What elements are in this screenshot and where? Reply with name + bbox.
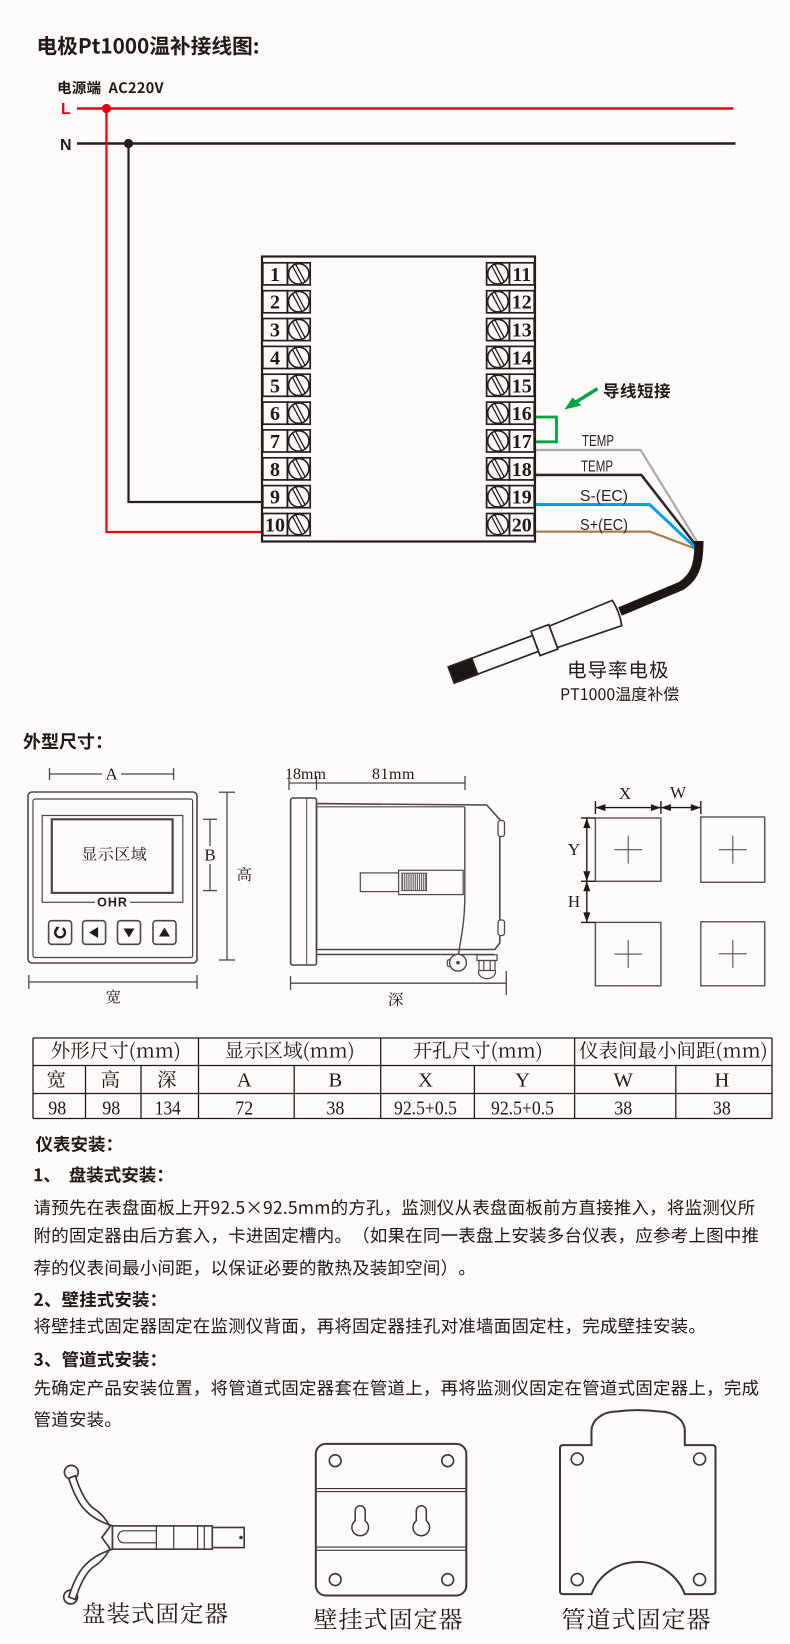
svg-text:8: 8: [270, 459, 280, 481]
svg-text:5: 5: [270, 375, 280, 397]
svg-text:19: 19: [512, 487, 532, 509]
svg-text:A: A: [105, 765, 118, 784]
svg-text:1: 1: [270, 264, 280, 286]
svg-text:W: W: [670, 783, 687, 802]
svg-text:72: 72: [235, 1098, 253, 1120]
svg-text:B: B: [329, 1070, 343, 1092]
svg-text:L: L: [61, 101, 71, 118]
svg-text:38: 38: [713, 1098, 731, 1120]
svg-text:20: 20: [512, 515, 532, 537]
svg-text:92.5+0.5: 92.5+0.5: [394, 1098, 457, 1120]
svg-text:Y: Y: [568, 840, 580, 859]
svg-text:B: B: [204, 846, 215, 865]
svg-text:16: 16: [512, 403, 532, 425]
svg-text:W: W: [614, 1070, 634, 1092]
svg-text:14: 14: [512, 347, 532, 369]
svg-text:Y: Y: [515, 1070, 530, 1092]
svg-text:X: X: [418, 1070, 433, 1092]
svg-text:3: 3: [270, 320, 280, 342]
svg-text:7: 7: [270, 431, 280, 453]
svg-text:17: 17: [512, 431, 532, 453]
svg-text:81mm: 81mm: [372, 766, 415, 783]
svg-text:TEMP: TEMP: [582, 433, 614, 450]
svg-text:S-(EC): S-(EC): [580, 488, 628, 505]
svg-text:98: 98: [48, 1098, 66, 1120]
svg-text:X: X: [619, 784, 631, 803]
svg-text:13: 13: [512, 320, 532, 342]
svg-text:134: 134: [155, 1098, 181, 1120]
svg-text:18mm: 18mm: [285, 766, 326, 783]
svg-text:92.5+0.5: 92.5+0.5: [491, 1098, 554, 1120]
svg-text:N: N: [60, 137, 72, 154]
svg-text:TEMP: TEMP: [581, 459, 613, 476]
svg-text:12: 12: [512, 292, 532, 314]
svg-text:98: 98: [102, 1098, 120, 1120]
svg-text:H: H: [568, 892, 580, 911]
svg-text:18: 18: [512, 459, 532, 481]
svg-text:H: H: [714, 1070, 729, 1092]
svg-text:A: A: [237, 1070, 252, 1092]
svg-text:15: 15: [512, 375, 532, 397]
svg-text:6: 6: [270, 403, 280, 425]
svg-text:38: 38: [614, 1098, 632, 1120]
svg-text:2: 2: [270, 292, 280, 314]
svg-text:OHR: OHR: [97, 896, 128, 910]
svg-text:10: 10: [265, 515, 285, 537]
svg-text:9: 9: [270, 487, 280, 509]
svg-text:4: 4: [270, 347, 280, 369]
svg-text:S+(EC): S+(EC): [580, 517, 628, 534]
svg-text:11: 11: [512, 264, 531, 286]
svg-text:38: 38: [326, 1098, 344, 1120]
